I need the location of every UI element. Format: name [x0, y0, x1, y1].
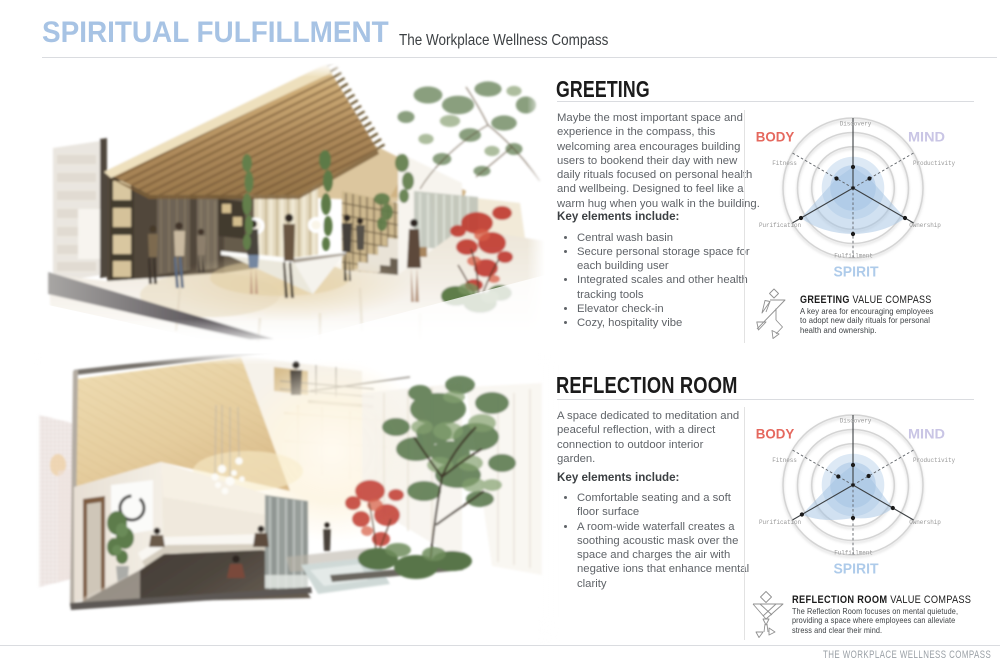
- svg-text:SPIRIT: SPIRIT: [834, 562, 879, 578]
- svg-text:Ownership: Ownership: [909, 519, 941, 526]
- svg-text:Discovery: Discovery: [840, 121, 872, 128]
- svg-text:Purification: Purification: [759, 519, 802, 526]
- svg-text:Purification: Purification: [759, 222, 802, 229]
- svg-text:BODY: BODY: [756, 426, 795, 442]
- svg-text:Fulfillment: Fulfillment: [834, 253, 873, 260]
- svg-text:Fitness: Fitness: [772, 457, 797, 464]
- svg-text:Discovery: Discovery: [840, 418, 872, 425]
- svg-text:MIND: MIND: [908, 426, 945, 442]
- svg-text:Ownership: Ownership: [909, 222, 941, 229]
- svg-text:BODY: BODY: [756, 129, 795, 145]
- svg-text:Productivity: Productivity: [913, 457, 956, 464]
- svg-text:Productivity: Productivity: [913, 160, 956, 167]
- svg-text:Fulfillment: Fulfillment: [834, 550, 873, 557]
- svg-text:MIND: MIND: [908, 129, 945, 145]
- svg-text:SPIRIT: SPIRIT: [834, 265, 879, 281]
- svg-text:Fitness: Fitness: [772, 160, 797, 167]
